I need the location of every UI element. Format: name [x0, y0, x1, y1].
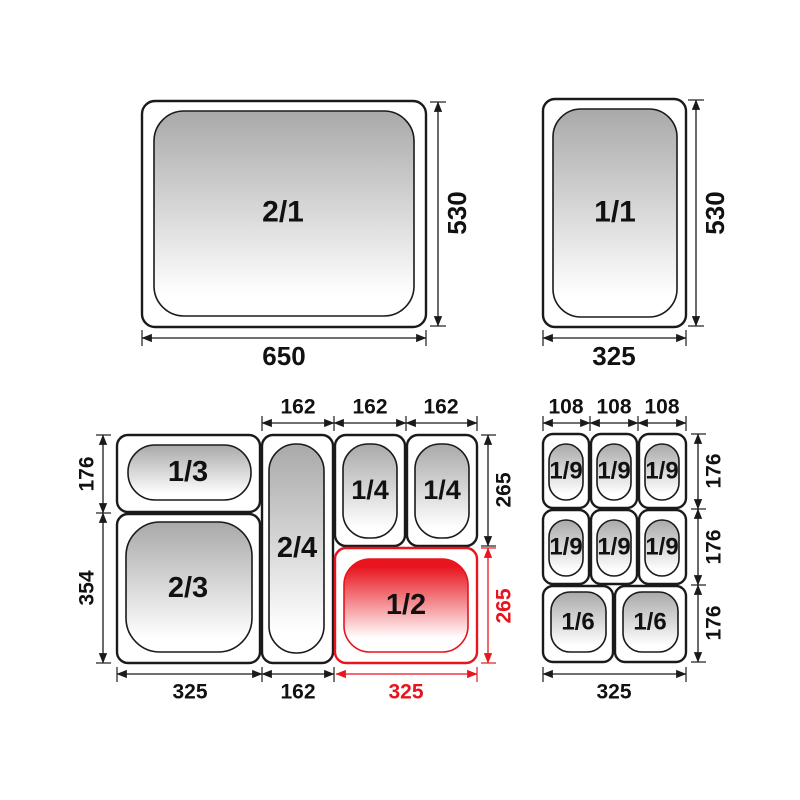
dim-2-1-width: 650 [142, 330, 426, 371]
dim-label-162: 162 [352, 396, 387, 419]
dim-label-530: 530 [442, 191, 472, 234]
pan-1-6: 1/6 [615, 586, 686, 662]
dim-label-650: 650 [262, 341, 305, 371]
combo-left-pans: 1/3 2/3 2/4 1/4 1/4 1/2 [117, 435, 477, 663]
pan-1-9: 1/9 [591, 510, 637, 584]
gn-pan-size-diagram: 2/1 530 650 1/1 530 325 1/3 [0, 0, 800, 800]
pan-1-9: 1/9 [591, 434, 637, 508]
dim-label-108: 108 [548, 396, 583, 419]
pan-1-9: 1/9 [543, 434, 589, 508]
dim-label-108: 108 [596, 396, 631, 419]
dim-label-176: 176 [703, 529, 726, 564]
dim-label-176: 176 [703, 605, 726, 640]
pan-1-9: 1/9 [639, 434, 686, 508]
combo-right-dim-bottom: 325 [543, 667, 686, 704]
dim-label-325: 325 [172, 681, 207, 704]
pan-1-6-label: 1/6 [633, 609, 666, 636]
dim-label-176: 176 [76, 456, 99, 491]
dim-label-176: 176 [703, 453, 726, 488]
pan-1-9-label: 1/9 [549, 458, 582, 485]
pan-1-9-label: 1/9 [597, 534, 630, 561]
pan-1-1: 1/1 [543, 99, 686, 327]
dim-label-530: 530 [700, 191, 730, 234]
dim-label-265-red: 265 [493, 588, 516, 623]
pan-1-6: 1/6 [543, 586, 613, 662]
combo-left-dim-right: 265 265 [481, 435, 516, 663]
dim-label-325: 325 [596, 681, 631, 704]
combo-left-dim-bottom: 325 162 325 [117, 667, 477, 704]
pan-1-9-label: 1/9 [645, 534, 678, 561]
pan-1-2-highlighted: 1/2 [335, 548, 477, 663]
pan-1-9-label: 1/9 [597, 458, 630, 485]
pan-2-1: 2/1 [142, 101, 426, 327]
pan-1-4-a: 1/4 [335, 435, 405, 546]
combo-right-pans: 1/9 1/9 1/9 1/9 1/9 1/9 [543, 434, 686, 662]
pan-2-1-label: 2/1 [262, 196, 304, 229]
pan-1-1-label: 1/1 [594, 196, 636, 229]
dim-label-108: 108 [644, 396, 679, 419]
combo-left-dim-left: 176 354 [76, 435, 112, 663]
pan-1-9: 1/9 [639, 510, 686, 584]
dim-2-1-height: 530 [430, 102, 472, 326]
pan-1-9-label: 1/9 [645, 458, 678, 485]
dim-label-354: 354 [76, 570, 99, 605]
dim-label-265: 265 [493, 472, 516, 507]
diagram-canvas: 2/1 530 650 1/1 530 325 1/3 [0, 0, 800, 800]
pan-1-9-label: 1/9 [549, 534, 582, 561]
pan-2-4-label: 2/4 [277, 532, 317, 564]
combo-right-dim-top: 108 108 108 [543, 396, 686, 432]
pan-1-6-label: 1/6 [561, 609, 594, 636]
dim-label-325: 325 [592, 341, 635, 371]
dim-1-1-height: 530 [688, 100, 730, 326]
combo-right-dim-right: 176 176 176 [691, 434, 726, 662]
dim-label-162: 162 [280, 396, 315, 419]
pan-2-3: 2/3 [117, 514, 260, 663]
pan-1-2-label: 1/2 [386, 589, 426, 621]
pan-1-3-label: 1/3 [168, 456, 208, 488]
pan-1-9: 1/9 [543, 510, 589, 584]
dim-1-1-width: 325 [543, 330, 686, 371]
pan-1-4-b-label: 1/4 [423, 475, 461, 505]
pan-1-4-b: 1/4 [407, 435, 477, 546]
pan-1-4-a-label: 1/4 [351, 475, 389, 505]
dim-label-162: 162 [423, 396, 458, 419]
pan-2-3-label: 2/3 [168, 572, 208, 604]
pan-1-3: 1/3 [117, 435, 260, 512]
combo-left-dim-top: 162 162 162 [262, 396, 477, 432]
dim-label-325-red: 325 [388, 681, 423, 704]
dim-label-162: 162 [280, 681, 315, 704]
pan-2-4: 2/4 [262, 435, 333, 663]
